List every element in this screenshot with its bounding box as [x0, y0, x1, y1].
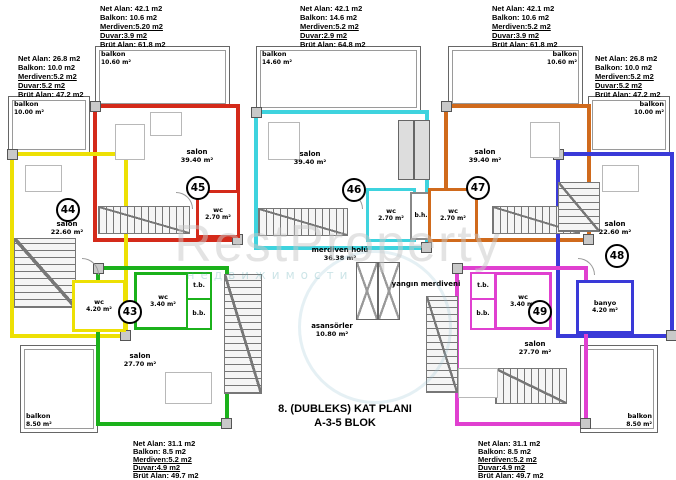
furniture-outline	[25, 165, 62, 192]
room-area: 2.70 m²	[205, 214, 231, 222]
room-name: b.b.	[192, 310, 205, 318]
unit-number-45: 45	[186, 176, 210, 200]
wc-room-unit-43: wc 3.40 m²	[134, 272, 192, 330]
service-duct-right	[414, 120, 430, 180]
salon-label-unit-47: salon 39.40 m²	[450, 148, 520, 164]
area-info-block-unit-47: Net Alan: 42.1 m2 Balkon: 10.6 m2 Merdiv…	[492, 4, 558, 49]
info-line-duvar: Duvar:3.9 m2	[100, 31, 166, 40]
bb-room-unit-49: b.b.	[470, 298, 496, 330]
room-area: 8.50 m²	[626, 421, 652, 429]
salon-label-unit-46: salon 39.40 m²	[275, 150, 345, 166]
room-area: 4.20 m²	[592, 307, 618, 315]
info-line-merdiven: Merdiven:5.2 m2	[595, 72, 661, 81]
salon-label-unit-49: salon 27.70 m²	[500, 340, 570, 356]
balcony-label: balkon 10.60 m²	[101, 51, 131, 66]
room-name: balkon	[634, 101, 664, 109]
room-name: salon	[275, 150, 345, 158]
info-line-merdiven: Merdiven:5.2 m2	[300, 22, 366, 31]
room-name: balkon	[262, 51, 292, 59]
furniture-outline	[115, 124, 145, 160]
info-line-net: Net Alan: 42.1 m2	[300, 4, 366, 13]
wc-room-unit-46: wc 2.70 m²	[366, 188, 416, 242]
area-info-block-unit-43: Net Alan: 31.1 m2 Balkon: 8.5 m2 Merdive…	[133, 440, 199, 480]
room-name: yangın merdiveni	[386, 280, 466, 288]
furniture-outline	[150, 112, 182, 136]
room-area: 2.70 m²	[378, 215, 404, 223]
info-line-brut: Brüt Alan: 64.8 m2	[300, 40, 366, 49]
area-info-block-unit-46: Net Alan: 42.1 m2 Balkon: 14.6 m2 Merdiv…	[300, 4, 366, 49]
room-name: wc	[213, 207, 223, 215]
area-info-block-unit-48: Net Alan: 26.8 m2 Balkon: 10.0 m2 Merdiv…	[595, 54, 661, 99]
area-info-block-unit-44: Net Alan: 26.8 m2 Balkon: 10.0 m2 Merdiv…	[18, 54, 84, 99]
room-name: merdiven holü	[300, 246, 380, 254]
plan-title: 8. (DUBLEKS) KAT PLANI A-3-5 BLOK	[250, 402, 440, 430]
room-area: 39.40 m²	[162, 156, 232, 164]
room-name: banyo	[594, 300, 616, 308]
room-name: balkon	[26, 413, 52, 421]
info-line-merdiven: Merdiven:5.2 m2	[18, 72, 84, 81]
unit-number-43: 43	[118, 300, 142, 324]
room-name: salon	[500, 340, 570, 348]
balcony-unit-44: balkon 10.00 m²	[8, 96, 90, 154]
balcony-label: balkon 10.00 m²	[634, 101, 664, 116]
balcony-label: balkon 10.60 m²	[547, 51, 577, 66]
info-line-brut: Brüt Alan: 49.7 m2	[133, 472, 199, 480]
info-line-brut: Brüt Alan: 47.2 m2	[595, 90, 661, 99]
balcony-label: balkon 10.00 m²	[14, 101, 44, 116]
balcony-unit-48: balkon 10.00 m²	[588, 96, 670, 154]
room-name: b.b.	[476, 310, 489, 318]
room-name: balkon	[101, 51, 131, 59]
room-area: 10.60 m²	[101, 59, 131, 67]
balcony-unit-43: balkon 8.50 m²	[20, 345, 98, 433]
staircase-unit-45	[98, 206, 190, 234]
room-name: salon	[450, 148, 520, 156]
room-label: wc 2.70 m²	[369, 191, 413, 239]
staircase-unit-44	[14, 238, 76, 308]
balcony-unit-46: balkon 14.60 m²	[256, 46, 421, 112]
info-line-duvar: Duvar:2.9 m2	[300, 31, 366, 40]
room-label: wc 2.70 m²	[199, 193, 237, 235]
room-name: wc	[386, 208, 396, 216]
balcony-label: balkon 8.50 m²	[26, 413, 52, 428]
room-area: 4.20 m²	[86, 306, 112, 314]
room-name: salon	[580, 220, 650, 228]
room-label: b.b.	[188, 300, 210, 328]
info-line-brut: Brüt Alan: 61.8 m2	[100, 40, 166, 49]
balcony-unit-49: balkon 8.50 m²	[580, 345, 658, 433]
room-name: b.h.	[414, 212, 427, 220]
balcony-unit-45: balkon 10.60 m²	[95, 46, 230, 108]
room-area: 10.80 m²	[292, 330, 372, 338]
area-info-block-unit-45: Net Alan: 42.1 m2 Balkon: 10.6 m2 Merdiv…	[100, 4, 166, 49]
floor-plan-canvas: Net Alan: 42.1 m2 Balkon: 10.6 m2 Merdiv…	[0, 0, 676, 480]
info-line-brut: Brüt Alan: 49.7 m2	[478, 472, 544, 480]
room-area: 14.60 m²	[262, 59, 292, 67]
room-area: 22.60 m²	[580, 228, 650, 236]
room-name: balkon	[547, 51, 577, 59]
room-name: salon	[162, 148, 232, 156]
unit-number-49: 49	[528, 300, 552, 324]
info-line-net: Net Alan: 26.8 m2	[595, 54, 661, 63]
area-info-block-unit-49: Net Alan: 31.1 m2 Balkon: 8.5 m2 Merdive…	[478, 440, 544, 480]
elevators-label: asansörler 10.80 m²	[292, 322, 372, 338]
tb-room-unit-43: t.b.	[186, 272, 212, 300]
furniture-outline	[530, 122, 560, 158]
room-name: wc	[518, 294, 528, 302]
room-name: wc	[94, 299, 104, 307]
info-line-merdiven: Merdiven:5.20 m2	[100, 22, 166, 31]
plan-title-line2: A-3-5 BLOK	[250, 416, 440, 430]
room-label: wc 3.40 m²	[137, 275, 189, 327]
elevator-shaft-left	[356, 262, 378, 320]
staircase-unit-49	[495, 368, 567, 404]
tb-room-unit-49: t.b.	[470, 272, 496, 300]
room-area: 8.50 m²	[26, 421, 52, 429]
salon-label-unit-44: salon 22.60 m²	[32, 220, 102, 236]
furniture-outline	[602, 165, 639, 192]
info-line-duvar: Duvar:5.2 m2	[595, 81, 661, 90]
salon-label-unit-45: salon 39.40 m²	[162, 148, 232, 164]
balcony-label: balkon 14.60 m²	[262, 51, 292, 66]
wc-room-unit-44: wc 4.20 m²	[72, 280, 126, 332]
unit-number-44: 44	[56, 198, 80, 222]
salon-label-unit-43: salon 27.70 m²	[105, 352, 175, 368]
staircase-unit-46	[258, 208, 348, 236]
room-area: 22.60 m²	[32, 228, 102, 236]
room-area: 10.00 m²	[14, 109, 44, 117]
info-line-balkon: Balkon: 14.6 m2	[300, 13, 366, 22]
room-area: 39.40 m²	[275, 158, 345, 166]
info-line-balkon: Balkon: 10.0 m2	[18, 63, 84, 72]
room-name: wc	[448, 208, 458, 216]
room-name: balkon	[14, 101, 44, 109]
balcony-unit-47: balkon 10.60 m²	[448, 46, 583, 108]
info-line-balkon: Balkon: 10.6 m2	[492, 13, 558, 22]
room-name: t.b.	[193, 282, 205, 290]
room-area: 27.70 m²	[105, 360, 175, 368]
info-line-brut: Brüt Alan: 61.8 m2	[492, 40, 558, 49]
info-line-duvar: Duvar:3.9 m2	[492, 31, 558, 40]
room-area: 39.40 m²	[450, 156, 520, 164]
room-area: 27.70 m²	[500, 348, 570, 356]
room-label: wc 2.70 m²	[431, 191, 475, 239]
unit-number-47: 47	[466, 176, 490, 200]
info-line-net: Net Alan: 42.1 m2	[492, 4, 558, 13]
info-line-merdiven: Merdiven:5.2 m2	[492, 22, 558, 31]
room-name: t.b.	[477, 282, 489, 290]
info-line-net: Net Alan: 42.1 m2	[100, 4, 166, 13]
room-label: banyo 4.20 m²	[579, 283, 631, 331]
fire-escape-label: yangın merdiveni	[386, 280, 466, 288]
room-name: asansörler	[292, 322, 372, 330]
room-name: wc	[158, 294, 168, 302]
balcony-label: balkon 8.50 m²	[626, 413, 652, 428]
room-area: 3.40 m²	[150, 301, 176, 309]
room-area: 10.60 m²	[547, 59, 577, 67]
plan-title-line1: 8. (DUBLEKS) KAT PLANI	[250, 402, 440, 416]
room-name: salon	[105, 352, 175, 360]
info-line-brut: Brüt Alan: 47.2 m2	[18, 90, 84, 99]
unit-number-48: 48	[605, 244, 629, 268]
info-line-duvar: Duvar:5.2 m2	[18, 81, 84, 90]
info-line-balkon: Balkon: 10.0 m2	[595, 63, 661, 72]
room-label: t.b.	[188, 274, 210, 298]
central-staircase	[224, 274, 262, 394]
banyo-room-unit-48: banyo 4.20 m²	[576, 280, 634, 334]
furniture-outline	[165, 372, 212, 404]
stair-hall-label: merdiven holü 36.38 m²	[300, 246, 380, 262]
bb-room-unit-43: b.b.	[186, 298, 212, 330]
furniture-outline	[458, 368, 498, 398]
room-area: 10.00 m²	[634, 109, 664, 117]
info-line-balkon: Balkon: 10.6 m2	[100, 13, 166, 22]
room-area: 2.70 m²	[440, 215, 466, 223]
room-area: 36.38 m²	[300, 254, 380, 262]
room-label: t.b.	[472, 274, 494, 298]
elevator-shaft-right	[378, 262, 400, 320]
room-name: balkon	[626, 413, 652, 421]
info-line-net: Net Alan: 26.8 m2	[18, 54, 84, 63]
fire-escape-staircase	[426, 296, 458, 393]
room-label: wc 4.20 m²	[75, 283, 123, 329]
service-duct-left	[398, 120, 414, 180]
salon-label-unit-48: salon 22.60 m²	[580, 220, 650, 236]
unit-number-46: 46	[342, 178, 366, 202]
room-label: b.b.	[472, 300, 494, 328]
